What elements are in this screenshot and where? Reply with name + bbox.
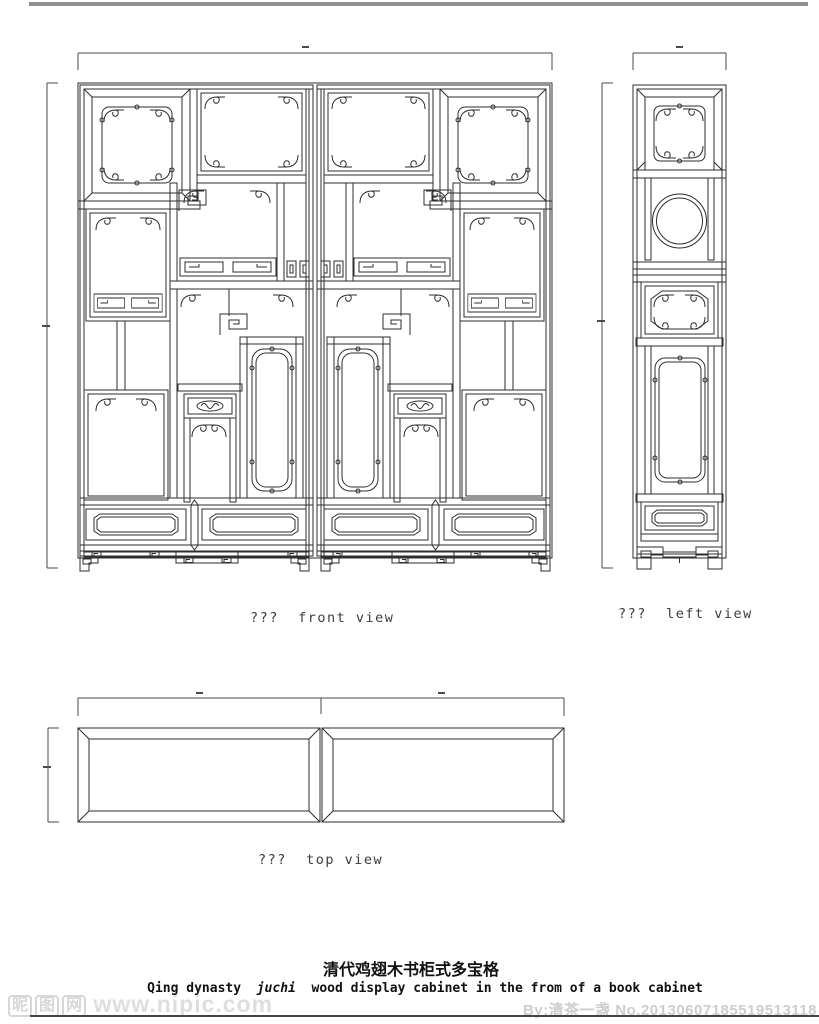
nipic-watermark: 昵图网 www.nipic.com <box>8 991 273 1018</box>
cad-drawing-canvas: ??? front view ??? left view ??? top vie… <box>0 0 819 1024</box>
front-view-drawing <box>78 83 552 571</box>
front-view-label: ??? front view <box>250 610 394 626</box>
title-chinese: 清代鸡翅木书柜式多宝格 <box>323 956 499 980</box>
nipic-url: www.nipic.com <box>94 991 274 1017</box>
nipic-logo-char: 图 <box>35 995 59 1017</box>
top-view-drawing <box>78 728 564 822</box>
title-english-suffix: wood display cabinet in the from of a bo… <box>296 981 703 996</box>
nipic-logo-char: 昵 <box>8 995 32 1017</box>
left-view-label: ??? left view <box>618 606 753 622</box>
left-view-drawing <box>633 85 726 569</box>
page: ??? front view ??? left view ??? top vie… <box>0 0 819 1024</box>
nipic-logo-char: 网 <box>62 995 86 1017</box>
bottom-rule <box>30 1015 819 1017</box>
dimension-ticks <box>42 46 683 768</box>
top-view-label: ??? top view <box>258 852 383 868</box>
dimension-lines <box>47 53 726 822</box>
